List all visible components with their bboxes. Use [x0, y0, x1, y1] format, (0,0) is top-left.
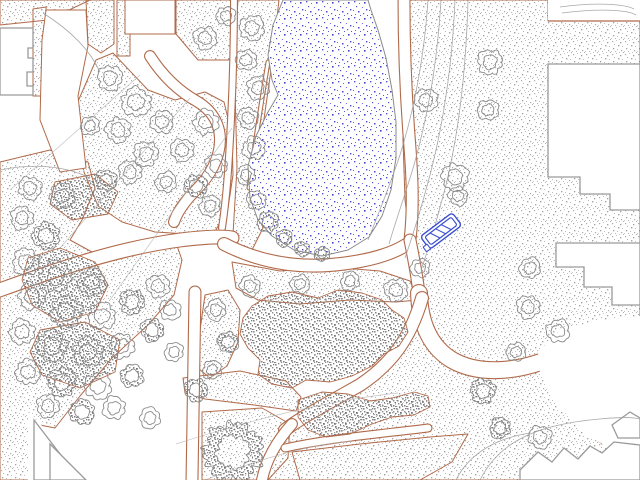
site-plan-canvas[interactable] [0, 0, 640, 480]
cad-viewport [0, 0, 640, 480]
